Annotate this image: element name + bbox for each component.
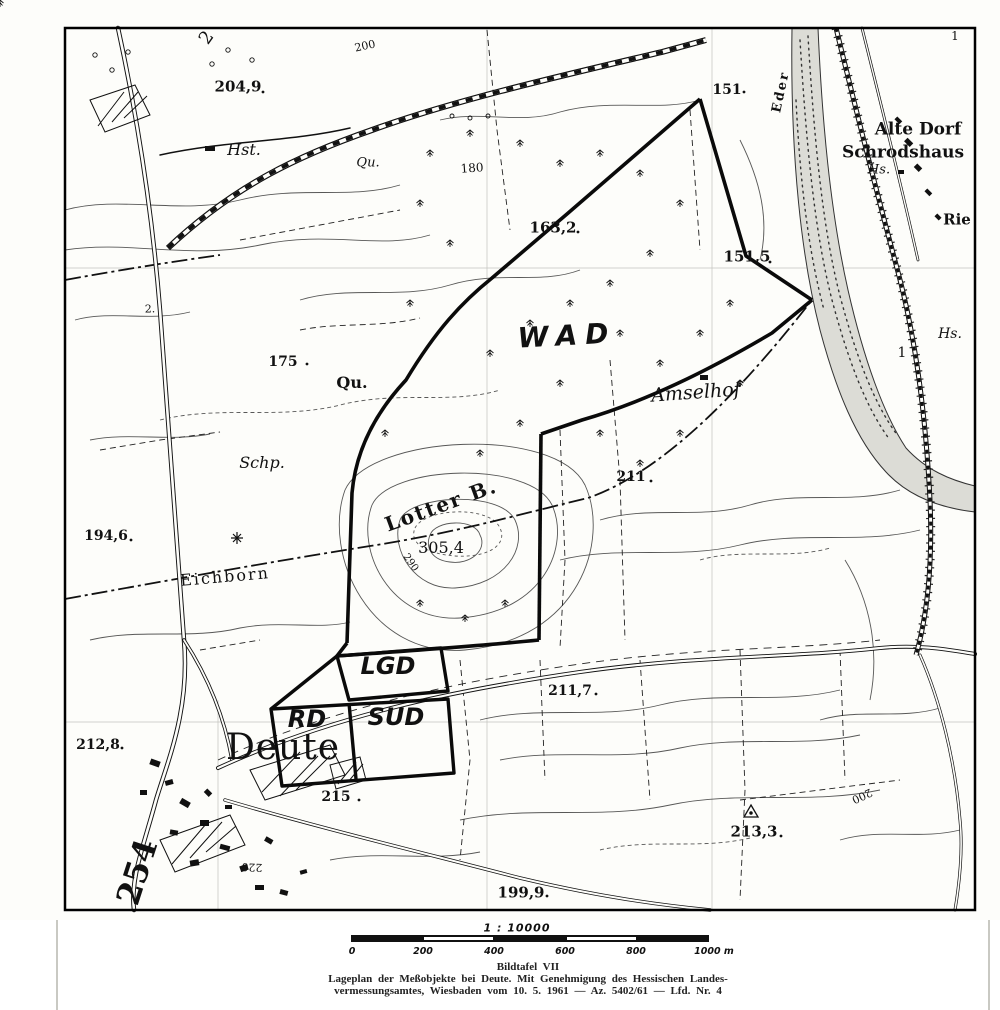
trig-point [744,805,758,817]
scale-segment [566,936,637,941]
scale-bar-segments [352,936,708,941]
scale-segment [423,936,494,941]
map-label-spot-212-8: 212,8 [76,738,120,752]
map-label-number-1-right: 1 [898,346,907,360]
map-label-schp: Schp. [239,455,285,471]
map-label-spot-211-7: 211,7 [548,684,592,698]
map-label-qu: Qu. [336,375,367,391]
hatched-area-top-left [90,85,150,132]
topographic-map: 204,9 Hst. 200 Qu. 180 151 Eder Alte Dor… [0,0,1000,920]
map-linework [0,0,1000,920]
map-label-spot-213-3: 213,3 [731,825,778,840]
scale-tick-200: 200 [413,946,433,957]
village-deute [140,146,904,896]
scale-segment [494,936,565,941]
scale-tick-600: 600 [555,946,575,957]
map-label-spot-151: 151 [712,83,741,97]
map-label-hs-upper: Hs. [868,164,890,177]
map-label-spot-175: 175 [268,355,297,369]
scale-ratio: 1 : 10000 [484,922,551,935]
scale-tick-1000m: 1000 m [694,946,734,957]
map-frame [65,28,975,910]
map-label-spot-163-2: 163,2 [530,221,577,236]
scale-tick-400: 400 [484,946,504,957]
map-label-spot-305-4: 305,4 [418,540,464,556]
map-label-contour-220: 220 [241,861,263,873]
map-label-spot-215: 215 [321,790,350,804]
map-label-schrodshaus: Schrodshaus [842,145,964,162]
dashed-field-paths [100,30,900,900]
scale-segment [352,936,423,941]
scale-tick-0: 0 [349,946,356,957]
caption-title: Bildtafel VII [178,962,878,974]
map-label-rd: RD [288,707,326,731]
grid-lines [65,28,975,910]
map-label-spot-211: 211 [616,470,645,484]
map-label-number-2-left: 2. [145,304,156,315]
map-label-deute: Deute [226,730,340,766]
scale-tick-800: 800 [626,946,646,957]
map-label-hs-right: Hs. [938,327,962,341]
measurement-area-boundary [337,99,812,656]
map-label-contour-180: 180 [460,161,484,175]
map-label-lgd: LGD [361,654,416,678]
map-label-alte-dorf: Alte Dorf [875,122,962,139]
caption-line-2: Lageplan der Meßobjekte bei Deute. Mit G… [178,974,878,986]
map-label-hst: Hst. [227,142,261,158]
river-eder-band [792,28,975,512]
map-label-wad: WAD [517,319,617,352]
map-label-spot-151-5: 151,5 [724,250,771,265]
scale-segment [637,936,708,941]
scale-bar: 1 : 10000 0 200 400 600 800 1000 m [0,0,1000,60]
map-label-qu-upper: Qu. [356,157,379,170]
map-label-rie: Rie [943,213,971,228]
map-label-spot-194-6: 194,6 [84,529,128,543]
map-label-sud: SUD [368,705,425,729]
map-label-spot-204-9: 204,9 [215,80,262,95]
caption-line-3: vermessungsamtes, Wiesbaden vom 10. 5. 1… [178,986,878,998]
star-symbol [231,532,243,544]
map-label-spot-199-9: 199,9 [498,886,545,901]
scanned-map-page: 204,9 Hst. 200 Qu. 180 151 Eder Alte Dor… [0,0,1000,1010]
